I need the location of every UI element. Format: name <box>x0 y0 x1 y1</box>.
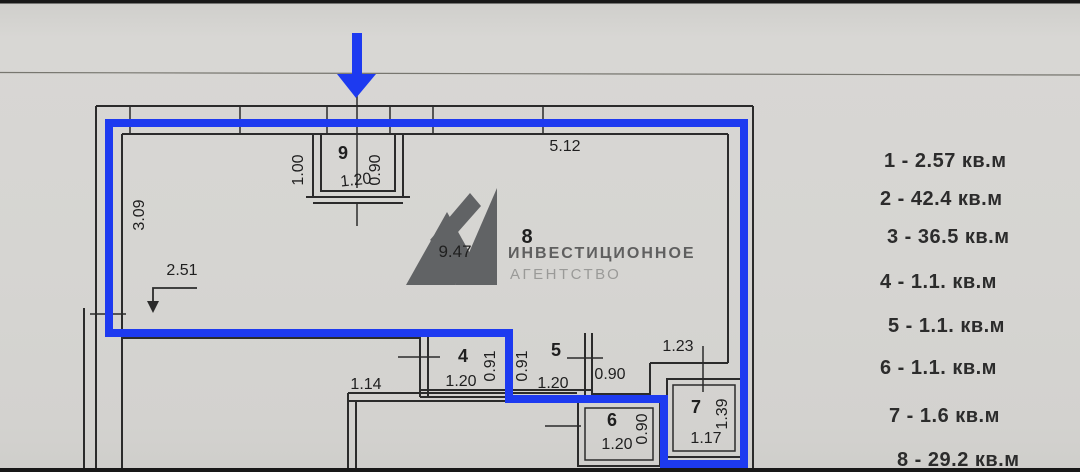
legend-item-4: 4 - 1.1. кв.м <box>880 271 997 294</box>
blue-arrow-icon <box>337 33 376 98</box>
scanned-floorplan-photo: 5.12 3.09 2.51 1.14 0.90 1.23 9 1.20 0.9… <box>0 0 1080 472</box>
room-4-number: 4 <box>448 347 478 365</box>
room-6-depth: 0.90 <box>634 404 652 454</box>
room-5-depth: 0.91 <box>514 341 532 391</box>
room-4-depth: 0.91 <box>482 341 500 391</box>
room-5-number: 5 <box>541 341 571 359</box>
room-8-diag: 9.47 <box>425 243 485 261</box>
agency-logo-icon <box>406 188 497 285</box>
dim-corridor: 0.90 <box>580 366 640 384</box>
watermark-brand-line1: ИНВЕСТИЦИОННОЕ <box>508 245 696 263</box>
room-9-side-right: 0.90 <box>367 145 385 195</box>
watermark-brand-line2: АГЕНТСТВО <box>510 266 621 283</box>
legend-item-5: 5 - 1.1. кв.м <box>888 315 1005 338</box>
room-6-number: 6 <box>597 411 627 429</box>
legend-item-6: 6 - 1.1. кв.м <box>880 357 997 380</box>
dim-bottom-left: 1.14 <box>336 376 396 394</box>
legend-item-7: 7 - 1.6 кв.м <box>889 405 1000 428</box>
room-9-side-left: 1.00 <box>290 145 308 195</box>
room-8-number: 8 <box>512 228 542 246</box>
legend-item-2: 2 - 42.4 кв.м <box>880 188 1003 211</box>
scan-line <box>0 73 1080 76</box>
dim-left-wall: 3.09 <box>131 190 149 240</box>
legend-item-3: 3 - 36.5 кв.м <box>887 226 1010 249</box>
legend-item-8: 8 - 29.2 кв.м <box>897 449 1020 472</box>
legend-item-1: 1 - 2.57 кв.м <box>884 150 1007 173</box>
room-9-number: 9 <box>328 144 358 162</box>
leader-arrowhead-icon <box>147 301 159 313</box>
dim-step: 1.23 <box>648 338 708 356</box>
dim-top-wall: 5.12 <box>535 138 595 156</box>
dim-left-inner: 2.51 <box>152 262 212 280</box>
photo-edge-top <box>0 0 1080 4</box>
room-7-number: 7 <box>681 398 711 416</box>
room-7-depth: 1.39 <box>714 389 732 439</box>
room-5-width: 1.20 <box>523 375 583 393</box>
